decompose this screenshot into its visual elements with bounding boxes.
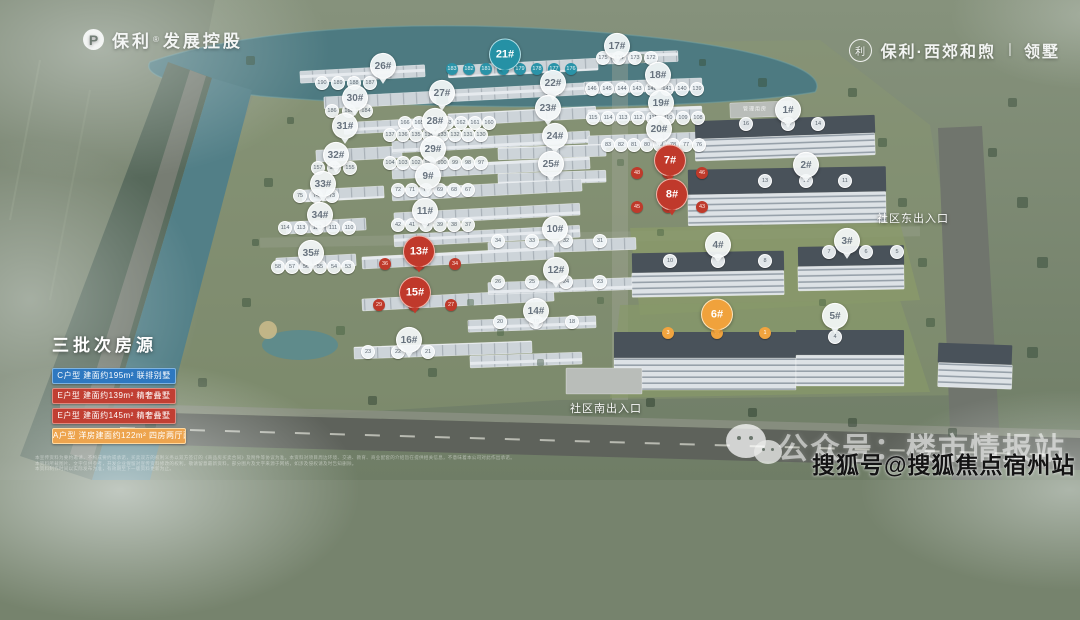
- building-badge-9: 9#: [415, 163, 441, 189]
- unit-circle-97: 97: [474, 156, 488, 170]
- building-badge-8: 8#: [656, 178, 688, 210]
- unit-circle-10: 10: [663, 254, 677, 268]
- building-badge-19: 19#: [648, 90, 674, 116]
- unit-circle-181: 181: [480, 63, 492, 75]
- building-badge-2: 2#: [793, 152, 819, 178]
- unit-circle-68: 68: [447, 183, 461, 197]
- unit-circle-7: 7: [822, 245, 836, 259]
- building-badge-16: 16#: [396, 327, 422, 353]
- disclaimer-line: 本资料制作时间以实际发布为准，有效期至下一版资料更新为止。: [35, 466, 580, 472]
- sohu-watermark: 搜狐号@搜狐焦点宿州站: [812, 446, 1075, 480]
- unit-circle-33: 33: [525, 234, 539, 248]
- unit-circle-5: 5: [890, 245, 904, 259]
- building-badge-26: 26#: [370, 53, 396, 79]
- brand-name: 保利: [112, 27, 152, 52]
- unit-circle-144: 144: [615, 82, 629, 96]
- building-badge-28: 28#: [422, 108, 448, 134]
- management-building-label: 管理用房: [743, 106, 767, 113]
- building-badge-30: 30#: [342, 85, 368, 111]
- building-badge-32: 32#: [323, 142, 349, 168]
- unit-circle-1: 1: [759, 327, 771, 339]
- unit-circle-131: 131: [461, 128, 475, 142]
- unit-circle-108: 108: [691, 111, 705, 125]
- unit-circle-146: 146: [585, 82, 599, 96]
- unit-circle-132: 132: [448, 128, 462, 142]
- unit-circle-83: 83: [601, 138, 615, 152]
- unit-circle-8: 8: [758, 254, 772, 268]
- unit-circle-16: 16: [739, 117, 753, 131]
- building-badge-3: 3#: [834, 228, 860, 254]
- unit-circle-23: 23: [361, 345, 375, 359]
- unit-circle-46: 46: [696, 167, 708, 179]
- unit-circle-82: 82: [614, 138, 628, 152]
- unit-circle-3: 3: [662, 327, 674, 339]
- building-badge-29: 29#: [420, 136, 446, 162]
- registered-mark: ®: [153, 35, 159, 44]
- building-badge-22: 22#: [540, 70, 566, 96]
- unit-circle-99: 99: [448, 156, 462, 170]
- legend-row-3: E户型 建面约145m² 精奢叠墅: [52, 408, 176, 424]
- unit-circle-18: 18: [565, 315, 579, 329]
- unit-circle-112: 112: [631, 111, 645, 125]
- entrance-label-east: 社区东出入口: [877, 210, 949, 226]
- unit-circle-114: 114: [278, 221, 292, 235]
- unit-circle-104: 104: [383, 156, 397, 170]
- unit-circle-25: 25: [525, 275, 539, 289]
- project-name: 保利·西郊和煦: [881, 38, 996, 62]
- building-badge-11: 11#: [412, 198, 438, 224]
- divider: 丨: [1003, 40, 1017, 60]
- building-badge-18: 18#: [645, 62, 671, 88]
- unit-circle-173: 173: [628, 51, 642, 65]
- brand-suffix: 发展控股: [163, 27, 243, 52]
- building-badge-27: 27#: [429, 80, 455, 106]
- unit-circle-57: 57: [285, 260, 299, 274]
- building-badge-25: 25#: [538, 151, 564, 177]
- unit-circle-190: 190: [315, 76, 329, 90]
- unit-circle-187: 187: [363, 76, 377, 90]
- unit-circle-37: 37: [461, 218, 475, 232]
- legend-title: 三批次房源: [52, 331, 186, 356]
- unit-circle-110: 110: [342, 221, 356, 235]
- unit-circle-145: 145: [600, 82, 614, 96]
- tree-dots: [0, 0, 1, 1]
- unit-circle-139: 139: [690, 82, 704, 96]
- unit-circle-176: 176: [565, 63, 577, 75]
- unit-circle-27: 27: [445, 299, 457, 311]
- unit-circle-182: 182: [463, 63, 475, 75]
- unit-circle-130: 130: [474, 128, 488, 142]
- building-badge-24: 24#: [542, 123, 568, 149]
- project-logo: 利 保利·西郊和煦 丨 领墅: [849, 38, 1060, 62]
- site-plan-poster: P 保利 ® 发展控股 利 保利·西郊和煦 丨 领墅 三批次房源 C户型 建面约…: [0, 0, 1080, 480]
- unit-circle-34: 34: [491, 234, 505, 248]
- unit-circle-31: 31: [593, 234, 607, 248]
- building-badge-6: 6#: [701, 298, 733, 330]
- poly-p-icon: P: [83, 29, 104, 50]
- unit-circle-48: 48: [631, 167, 643, 179]
- unit-circle-183: 183: [446, 63, 458, 75]
- unit-circle-29: 29: [373, 299, 385, 311]
- unit-circle-14: 14: [811, 117, 825, 131]
- building-badge-10: 10#: [542, 216, 568, 242]
- unit-circle-43: 43: [696, 201, 708, 213]
- building-badge-4: 4#: [705, 232, 731, 258]
- unit-circle-13: 13: [758, 174, 772, 188]
- unit-circle-76: 76: [692, 138, 706, 152]
- building-badge-13: 13#: [403, 235, 435, 267]
- unit-circle-113: 113: [616, 111, 630, 125]
- building-badge-23: 23#: [535, 95, 561, 121]
- unit-circle-113: 113: [294, 221, 308, 235]
- unit-circle-98: 98: [461, 156, 475, 170]
- unit-circle-23: 23: [593, 275, 607, 289]
- unit-circle-6: 6: [859, 245, 873, 259]
- unit-circle-34: 34: [449, 258, 461, 270]
- legend-row-4: A户型 洋房建面约122m² 四房两厅两卫: [52, 428, 186, 444]
- entrance-label-south: 社区南出入口: [570, 400, 642, 416]
- building-badge-15: 15#: [399, 276, 431, 308]
- unit-circle-115: 115: [586, 111, 600, 125]
- unit-circle-45: 45: [631, 201, 643, 213]
- unit-circle-26: 26: [491, 275, 505, 289]
- unit-circle-20: 20: [493, 315, 507, 329]
- unit-circle-54: 54: [327, 260, 341, 274]
- building-badge-31: 31#: [332, 113, 358, 139]
- unit-circle-71: 71: [405, 183, 419, 197]
- unit-circle-189: 189: [331, 76, 345, 90]
- unit-circle-38: 38: [447, 218, 461, 232]
- legend-rows: C户型 建面约195m² 联排别墅E户型 建面约139m² 精奢叠墅E户型 建面…: [52, 368, 186, 444]
- unit-circle-72: 72: [391, 183, 405, 197]
- legend-panel: 三批次房源 C户型 建面约195m² 联排别墅E户型 建面约139m² 精奢叠墅…: [52, 331, 186, 448]
- unit-circle-67: 67: [461, 183, 475, 197]
- unit-circle-42: 42: [391, 218, 405, 232]
- unit-circle-103: 103: [396, 156, 410, 170]
- building-badge-14: 14#: [523, 298, 549, 324]
- unit-circle-109: 109: [676, 111, 690, 125]
- legend-row-1: C户型 建面约195m² 联排别墅: [52, 368, 176, 384]
- project-series: 领墅: [1024, 38, 1060, 62]
- unit-circle-178: 178: [531, 63, 543, 75]
- legend-row-2: E户型 建面约139m² 精奢叠墅: [52, 388, 176, 404]
- building-badge-21: 21#: [489, 38, 521, 70]
- unit-circle-21: 21: [421, 345, 435, 359]
- unit-circle-136: 136: [396, 128, 410, 142]
- disclaimer-text: 本宣传资料为要约邀请，不构成要约或承诺，买卖双方的权利义务以双方签订的《商品房买…: [35, 455, 580, 472]
- unit-circle-53: 53: [341, 260, 355, 274]
- unit-circle-114: 114: [601, 111, 615, 125]
- building-badge-17: 17#: [604, 33, 630, 59]
- unit-circle-135: 135: [409, 128, 423, 142]
- unit-circle-75: 75: [293, 189, 307, 203]
- unit-circle-36: 36: [379, 258, 391, 270]
- building-badge-33: 33#: [310, 171, 336, 197]
- seal-icon: 利: [849, 39, 872, 62]
- unit-circle-11: 11: [838, 174, 852, 188]
- building-badge-7: 7#: [654, 144, 686, 176]
- unit-circle-58: 58: [271, 260, 285, 274]
- unit-circle-39: 39: [433, 218, 447, 232]
- poly-developer-logo: P 保利 ® 发展控股: [83, 27, 243, 52]
- unit-circle-143: 143: [630, 82, 644, 96]
- building-badge-20: 20#: [646, 116, 672, 142]
- building-badge-12: 12#: [543, 257, 569, 283]
- building-badge-34: 34#: [307, 202, 333, 228]
- disclaimer-line: 本宣传资料为要约邀请，不构成要约或承诺，买卖双方的权利义务以双方签订的《商品房买…: [35, 455, 580, 461]
- building-badge-35: 35#: [298, 240, 324, 266]
- building-badge-5: 5#: [822, 303, 848, 329]
- unit-circle-140: 140: [675, 82, 689, 96]
- building-badge-1: 1#: [775, 97, 801, 123]
- unit-circle-81: 81: [627, 138, 641, 152]
- unit-circle-137: 137: [383, 128, 397, 142]
